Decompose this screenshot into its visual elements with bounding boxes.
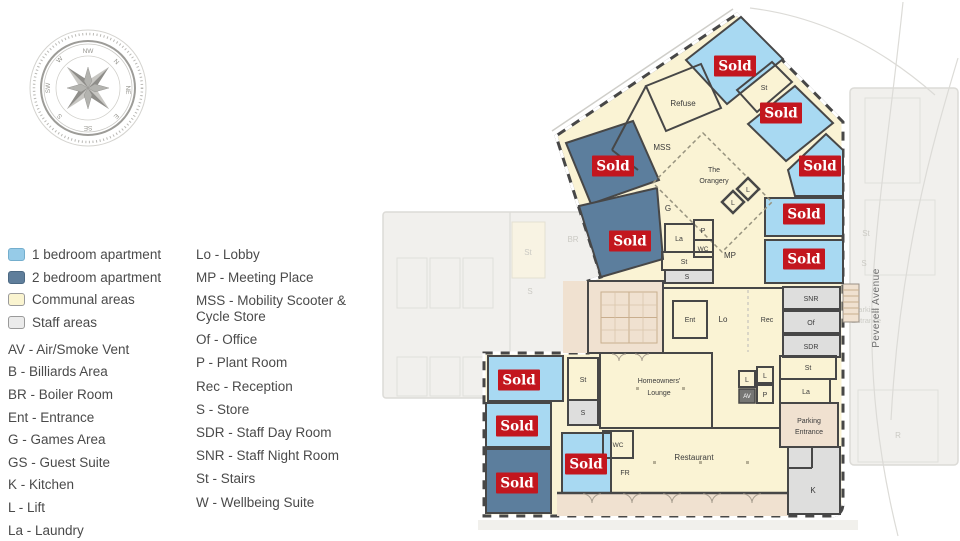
label-lift-3: L [745,377,749,384]
svg-text:Sold: Sold [500,419,534,435]
label-staff-day-room: SDR [804,344,819,351]
label-lift-4: L [763,373,767,380]
courtyard-entry [563,281,588,353]
label-lobby: Lo [719,315,728,324]
label-meeting-place: MP [724,251,736,260]
room-kitchen [788,447,840,514]
label-restaurant: Restaurant [674,453,714,462]
label-staff-night-room: SNR [804,296,819,303]
label-entrance: Ent [685,317,696,324]
label-kitchen: K [810,486,816,495]
label-games-area: G [665,204,671,213]
background-label-s2: S [861,259,866,268]
sold-badge-9: Sold [496,416,538,437]
background-label-st2: St [862,229,870,238]
label-stairs-east: St [805,365,812,372]
label-laundry-central: La [675,236,683,243]
svg-text:Sold: Sold [787,207,821,223]
background-label-st: St [524,248,532,257]
sold-badge-8: Sold [498,370,540,391]
sold-badge-10: Sold [496,473,538,494]
label-lift-2: L [731,200,735,207]
site-plan-canvas: NW N NE E SE S SW W 1 bedroom apartment … [0,0,960,540]
sold-badge-3: Sold [799,156,841,177]
sold-badge-5: Sold [783,249,825,270]
label-laundry-east: La [802,389,810,396]
pavement-strip [478,520,858,530]
svg-text:Sold: Sold [764,106,798,122]
label-lounge-2: Lounge [647,390,670,397]
label-store-west: S [581,410,586,417]
svg-text:Sold: Sold [500,476,534,492]
label-stairs-north: St [761,85,768,92]
sold-badge-2: Sold [760,103,802,124]
svg-text:Sold: Sold [596,159,630,175]
sold-badge-7: Sold [609,231,651,252]
background-building-right [850,88,958,465]
label-stairs-west: St [580,377,587,384]
sold-badge-6: Sold [592,156,634,177]
label-air-smoke-vent: AV [743,394,751,400]
label-wc-restaurant: WC [613,442,624,449]
label-parking-entrance-2: Entrance [795,429,823,436]
label-lounge-1: Homeowners' [638,378,681,385]
svg-text:Sold: Sold [613,234,647,250]
label-orangery-2: Orangery [699,178,729,185]
background-label-br: BR [567,235,578,244]
label-plant-south: P [763,392,768,399]
label-parking-entrance-1: Parking [797,418,821,425]
label-orangery-1: The [708,167,720,174]
street-label-peverell-avenue: Peverell Avenue [871,268,882,348]
label-store-central: S [685,274,690,281]
label-lift-1: L [746,187,750,194]
label-stairs-central: St [681,259,688,266]
label-reception: Rec [761,317,774,324]
sold-badge-1: Sold [714,56,756,77]
label-wc-central: WC [698,246,709,253]
room-parking-entrance [780,403,838,447]
svg-text:Sold: Sold [718,59,752,75]
svg-text:Sold: Sold [569,457,603,473]
background-label-s: S [527,287,532,296]
label-plant: P [701,228,706,235]
label-mss: MSS [653,143,670,152]
terrace [557,493,788,516]
svg-text:Sold: Sold [787,252,821,268]
svg-text:Sold: Sold [803,159,837,175]
background-label-r: R [895,431,901,440]
label-refuse: Refuse [670,99,696,108]
svg-text:Sold: Sold [502,373,536,389]
sold-badge-4: Sold [783,204,825,225]
label-fr: FR [620,470,629,477]
floor-plan: St S BR St S R Parking Entrance [0,0,960,540]
sold-badge-11: Sold [565,454,607,475]
label-office: Of [807,320,814,327]
